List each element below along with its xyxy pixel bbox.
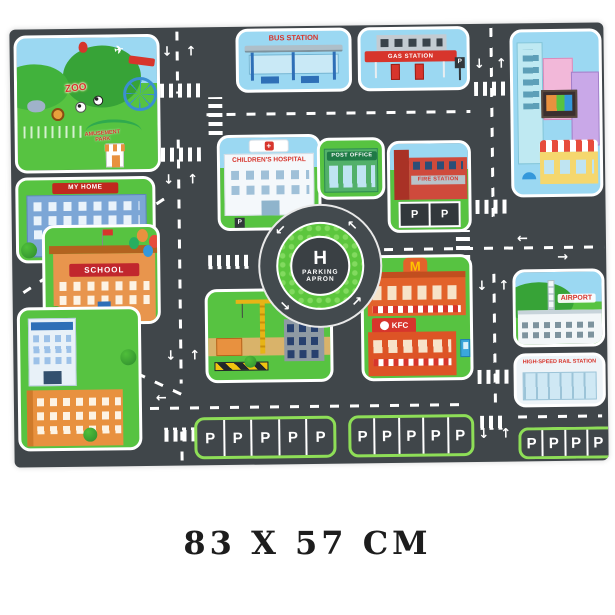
shelter-post bbox=[251, 53, 254, 81]
tree bbox=[120, 349, 136, 365]
sign-pole bbox=[459, 68, 461, 80]
hot-air-balloon-icon bbox=[79, 42, 88, 53]
canopy-post bbox=[443, 61, 445, 77]
parking-letter: P bbox=[411, 209, 418, 221]
site-hut bbox=[216, 338, 242, 356]
parking-lot: P P P P P bbox=[348, 414, 475, 458]
lane-dash bbox=[492, 274, 497, 404]
door-row bbox=[329, 165, 375, 188]
parking-letter: P bbox=[357, 428, 367, 445]
window-row bbox=[373, 339, 451, 353]
panda-icon bbox=[93, 96, 103, 106]
roundabout-arrow: ↑ bbox=[276, 296, 293, 313]
window-row bbox=[287, 350, 321, 358]
window-row bbox=[33, 335, 71, 342]
helipad-letter: H bbox=[313, 249, 327, 268]
lane-dash bbox=[384, 245, 604, 251]
billboard-art bbox=[546, 95, 572, 111]
awning-strip bbox=[373, 305, 461, 313]
window-row bbox=[522, 321, 598, 328]
fuel-pump bbox=[415, 64, 424, 80]
control-tower bbox=[547, 280, 554, 310]
fire-station-tower bbox=[394, 150, 410, 200]
parking-letter: P bbox=[571, 434, 581, 451]
window-row bbox=[373, 285, 461, 300]
road-arrow: ↑ bbox=[496, 58, 507, 71]
parking-letter: P bbox=[315, 428, 325, 445]
road-arrow: ← bbox=[517, 232, 528, 245]
residential-block bbox=[17, 306, 143, 452]
parking-stall: P bbox=[351, 418, 374, 454]
bus-station-block: BUS STATION bbox=[235, 27, 352, 92]
billboard bbox=[541, 90, 577, 118]
road-arrow: ↑ bbox=[500, 428, 511, 441]
safety-barrier bbox=[214, 362, 268, 372]
fire-station-label: FIRE STATION bbox=[418, 177, 459, 183]
crosswalk bbox=[474, 82, 508, 96]
window-row bbox=[231, 170, 309, 180]
lane-dash bbox=[150, 403, 470, 410]
ferris-wheel-icon bbox=[123, 77, 157, 111]
crosswalk bbox=[208, 255, 252, 270]
post-office-block: POST OFFICE bbox=[317, 137, 386, 200]
play-mat: ↓ ↑ ↓ ↑ ↓ ↑ ↓ ↑ ↓ ↑ ↓ ↑ ← → ← ↑ ↑ ↑ ✈ ZO… bbox=[9, 22, 608, 467]
gas-station-block: GAS STATION P bbox=[357, 26, 470, 91]
window-row bbox=[380, 38, 442, 47]
school-label: SCHOOL bbox=[84, 266, 124, 274]
parking-stall: P bbox=[374, 418, 399, 454]
window-row bbox=[522, 331, 598, 338]
bench bbox=[261, 76, 279, 83]
fuel-pump bbox=[391, 64, 400, 80]
parking-stall: P bbox=[306, 419, 334, 455]
hospital-roof-sign: + bbox=[249, 139, 289, 152]
mcdonalds-building bbox=[367, 271, 466, 316]
soccer-ball-icon bbox=[75, 102, 86, 113]
airplane-icon: ✈ bbox=[114, 44, 125, 57]
crosswalk bbox=[475, 200, 509, 214]
parking-stall: P bbox=[197, 420, 223, 456]
airport-label: AIRPORT bbox=[558, 294, 596, 303]
crane-mast bbox=[260, 300, 266, 354]
parking-stall: P bbox=[278, 419, 306, 455]
elephant-icon bbox=[27, 100, 45, 112]
fire-station-block: FIRE STATION P P bbox=[387, 140, 472, 233]
parking-letter: P bbox=[455, 427, 465, 444]
lane-dash bbox=[206, 110, 470, 116]
road-arrow: ↓ bbox=[163, 174, 174, 187]
gas-station-building bbox=[376, 34, 446, 51]
crosswalk bbox=[161, 147, 201, 161]
parking-letter: P bbox=[406, 427, 416, 444]
rail-station-label: HIGH-SPEED RAIL STATION bbox=[516, 359, 602, 366]
booth-door bbox=[112, 155, 120, 167]
window-row bbox=[37, 411, 121, 420]
parking-lot: P P P P bbox=[518, 426, 608, 459]
parking-letter: P bbox=[549, 434, 559, 451]
fire-station-building: FIRE STATION bbox=[409, 157, 468, 200]
station-parking: P P bbox=[398, 201, 460, 228]
shelter-post bbox=[333, 52, 336, 80]
airport-block: AIRPORT bbox=[512, 268, 605, 347]
parking-stall: P bbox=[223, 420, 251, 456]
flag bbox=[103, 229, 113, 235]
parking-letter: P bbox=[431, 427, 441, 444]
fence bbox=[24, 126, 82, 139]
hospital-label: CHILDREN'S HOSPITAL bbox=[225, 157, 313, 165]
shops-block bbox=[509, 28, 603, 197]
booth-window bbox=[463, 342, 468, 349]
window-row bbox=[33, 357, 71, 364]
road-arrow: ↑ bbox=[187, 173, 198, 186]
road-arrow: ↓ bbox=[165, 350, 176, 363]
size-caption: 83 X 57 CM bbox=[0, 524, 615, 562]
parking-letter: P bbox=[593, 434, 603, 451]
canopy-post bbox=[375, 62, 377, 78]
tower-sign bbox=[31, 322, 73, 331]
shelter-post bbox=[292, 52, 295, 80]
parking-letter: P bbox=[238, 220, 242, 227]
tree bbox=[21, 242, 37, 258]
helipad: H PARKING APRON bbox=[290, 235, 351, 296]
parking-lot: P P P P P bbox=[194, 416, 337, 460]
my-home-label: MY HOME bbox=[68, 185, 103, 192]
balloon bbox=[143, 245, 153, 257]
parking-letter: P bbox=[205, 430, 215, 447]
parking-letter: P bbox=[288, 429, 298, 446]
parking-stall: P bbox=[422, 417, 447, 453]
window-row bbox=[287, 337, 321, 345]
shop-windows bbox=[544, 160, 594, 175]
parking-stall: P bbox=[250, 419, 278, 455]
parking-letter: P bbox=[260, 429, 270, 446]
station-glass bbox=[523, 371, 597, 400]
crosswalk bbox=[160, 83, 200, 97]
post-office-sign: POST OFFICE bbox=[327, 151, 377, 161]
kfc-building bbox=[368, 331, 457, 376]
parking-letter: P bbox=[526, 435, 536, 452]
window-row bbox=[231, 185, 309, 195]
hotel-tower bbox=[28, 318, 77, 387]
window-row bbox=[33, 346, 71, 353]
bus-station-label: BUS STATION bbox=[238, 34, 348, 43]
kfc-label: KFC bbox=[392, 321, 409, 329]
fire-station-sign: FIRE STATION bbox=[411, 175, 465, 185]
parking-letter: P bbox=[382, 428, 392, 445]
hospital-entrance bbox=[261, 200, 279, 215]
crane-hook bbox=[242, 304, 243, 318]
red-cross-icon: + bbox=[264, 141, 273, 150]
parking-stall: P bbox=[401, 204, 429, 226]
road-arrow: ← bbox=[156, 392, 167, 405]
parking-stall: P bbox=[398, 418, 423, 454]
parking-stall: P bbox=[429, 203, 459, 225]
gas-station-label: GAS STATION bbox=[388, 53, 434, 60]
road-arrow: ↑ bbox=[189, 349, 200, 362]
mcdonalds-roof-tab: M bbox=[403, 258, 427, 273]
window-column bbox=[523, 49, 540, 109]
post-office-building: POST OFFICE bbox=[324, 148, 379, 193]
tree bbox=[244, 356, 256, 368]
ticket-booth bbox=[106, 143, 124, 167]
road-arrow: ↑ bbox=[186, 45, 197, 58]
window-row bbox=[37, 397, 121, 406]
awning-strip bbox=[373, 358, 451, 366]
lion-icon bbox=[51, 108, 64, 121]
road-arrow: ↓ bbox=[476, 280, 487, 293]
window-row bbox=[37, 425, 121, 434]
parking-stall: P bbox=[521, 430, 542, 456]
parking-letter: P bbox=[233, 429, 243, 446]
tower-entrance bbox=[44, 371, 62, 384]
road-arrow: → bbox=[557, 251, 568, 264]
helipad-word: APRON bbox=[306, 276, 335, 283]
tree bbox=[83, 428, 97, 442]
parking-stall: P bbox=[564, 430, 587, 456]
balloon bbox=[129, 237, 139, 249]
parking-sign: P bbox=[455, 57, 465, 68]
lane-dash bbox=[518, 414, 602, 418]
umbrella-icon bbox=[522, 172, 536, 179]
post-office-label: POST OFFICE bbox=[331, 153, 372, 159]
bench bbox=[301, 76, 319, 83]
window-row bbox=[33, 201, 139, 211]
rail-station-block: HIGH-SPEED RAIL STATION bbox=[513, 352, 606, 407]
road-arrow: ↓ bbox=[478, 428, 489, 441]
parking-sign: P bbox=[235, 218, 245, 228]
lane-dash bbox=[489, 28, 494, 224]
window-row bbox=[59, 281, 149, 291]
my-home-sign: MY HOME bbox=[52, 182, 118, 194]
storefront bbox=[540, 151, 598, 184]
parking-stall: P bbox=[447, 417, 472, 453]
parking-letter: P bbox=[441, 208, 448, 220]
awning bbox=[105, 144, 125, 151]
terminal-building bbox=[518, 309, 602, 344]
parking-stall: P bbox=[542, 430, 565, 456]
colonel-face-icon bbox=[380, 321, 389, 330]
crosswalk bbox=[208, 97, 222, 135]
road-arrow: ↓ bbox=[474, 58, 485, 71]
parking-letter: P bbox=[458, 59, 462, 66]
parking-stall: P bbox=[586, 429, 609, 455]
road-arrow: ↑ bbox=[498, 280, 509, 293]
lane-dash bbox=[177, 140, 183, 384]
phone-booth bbox=[460, 339, 470, 357]
school-sign: SCHOOL bbox=[69, 263, 139, 277]
park-block: ✈ ZOO AMUSEMENT PARK bbox=[13, 34, 161, 174]
crosswalk bbox=[478, 370, 512, 384]
apartment-building bbox=[27, 389, 124, 446]
window-row bbox=[413, 161, 463, 170]
striped-awning bbox=[540, 139, 598, 152]
road-arrow: ↓ bbox=[162, 46, 173, 59]
